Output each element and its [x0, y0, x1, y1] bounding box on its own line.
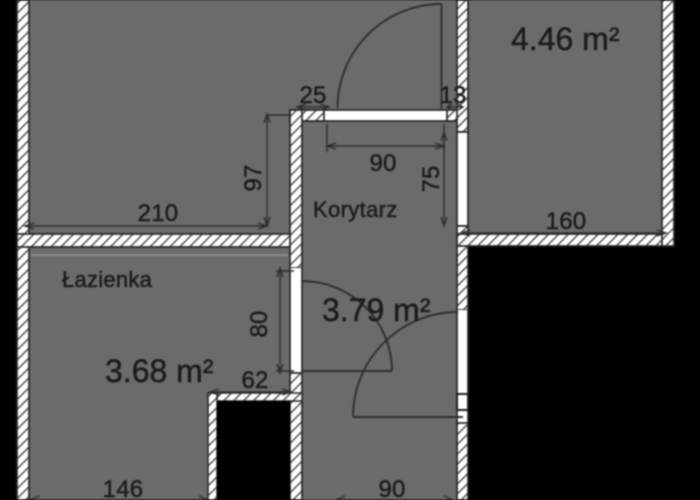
svg-text:13: 13 — [439, 82, 466, 109]
svg-text:146: 146 — [103, 476, 144, 500]
svg-text:62: 62 — [241, 367, 268, 394]
svg-text:Łazienka: Łazienka — [62, 267, 153, 292]
svg-text:90: 90 — [378, 476, 405, 500]
svg-text:75: 75 — [418, 165, 445, 192]
svg-text:210: 210 — [138, 200, 179, 227]
svg-text:25: 25 — [299, 82, 326, 109]
svg-text:3.79 m²: 3.79 m² — [322, 292, 431, 328]
svg-text:Korytarz: Korytarz — [313, 197, 398, 222]
svg-text:90: 90 — [369, 150, 396, 177]
svg-text:80: 80 — [246, 310, 273, 337]
svg-text:97: 97 — [240, 164, 267, 191]
svg-text:4.46 m²: 4.46 m² — [511, 21, 620, 57]
svg-text:3.68 m²: 3.68 m² — [105, 353, 214, 389]
svg-text:160: 160 — [546, 208, 587, 235]
